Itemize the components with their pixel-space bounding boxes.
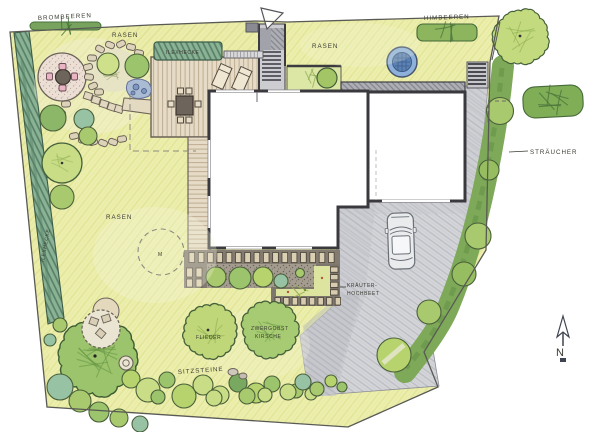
- svg-text:M: M: [158, 252, 162, 258]
- svg-text:ILEXHECKE: ILEXHECKE: [166, 50, 200, 56]
- svg-text:RASEN: RASEN: [106, 214, 132, 221]
- svg-text:N: N: [556, 347, 564, 359]
- svg-text:KRÄUTER-: KRÄUTER-: [347, 282, 377, 289]
- svg-text:KIRSCHE: KIRSCHE: [255, 334, 281, 340]
- svg-text:FLIEDER: FLIEDER: [196, 335, 221, 341]
- svg-text:RASEN: RASEN: [112, 32, 138, 39]
- svg-text:RASEN: RASEN: [312, 43, 338, 50]
- svg-text:HOCHBEET: HOCHBEET: [347, 291, 380, 297]
- svg-text:STRÄUCHER: STRÄUCHER: [530, 149, 578, 156]
- svg-text:ZWERGOBST: ZWERGOBST: [251, 326, 289, 332]
